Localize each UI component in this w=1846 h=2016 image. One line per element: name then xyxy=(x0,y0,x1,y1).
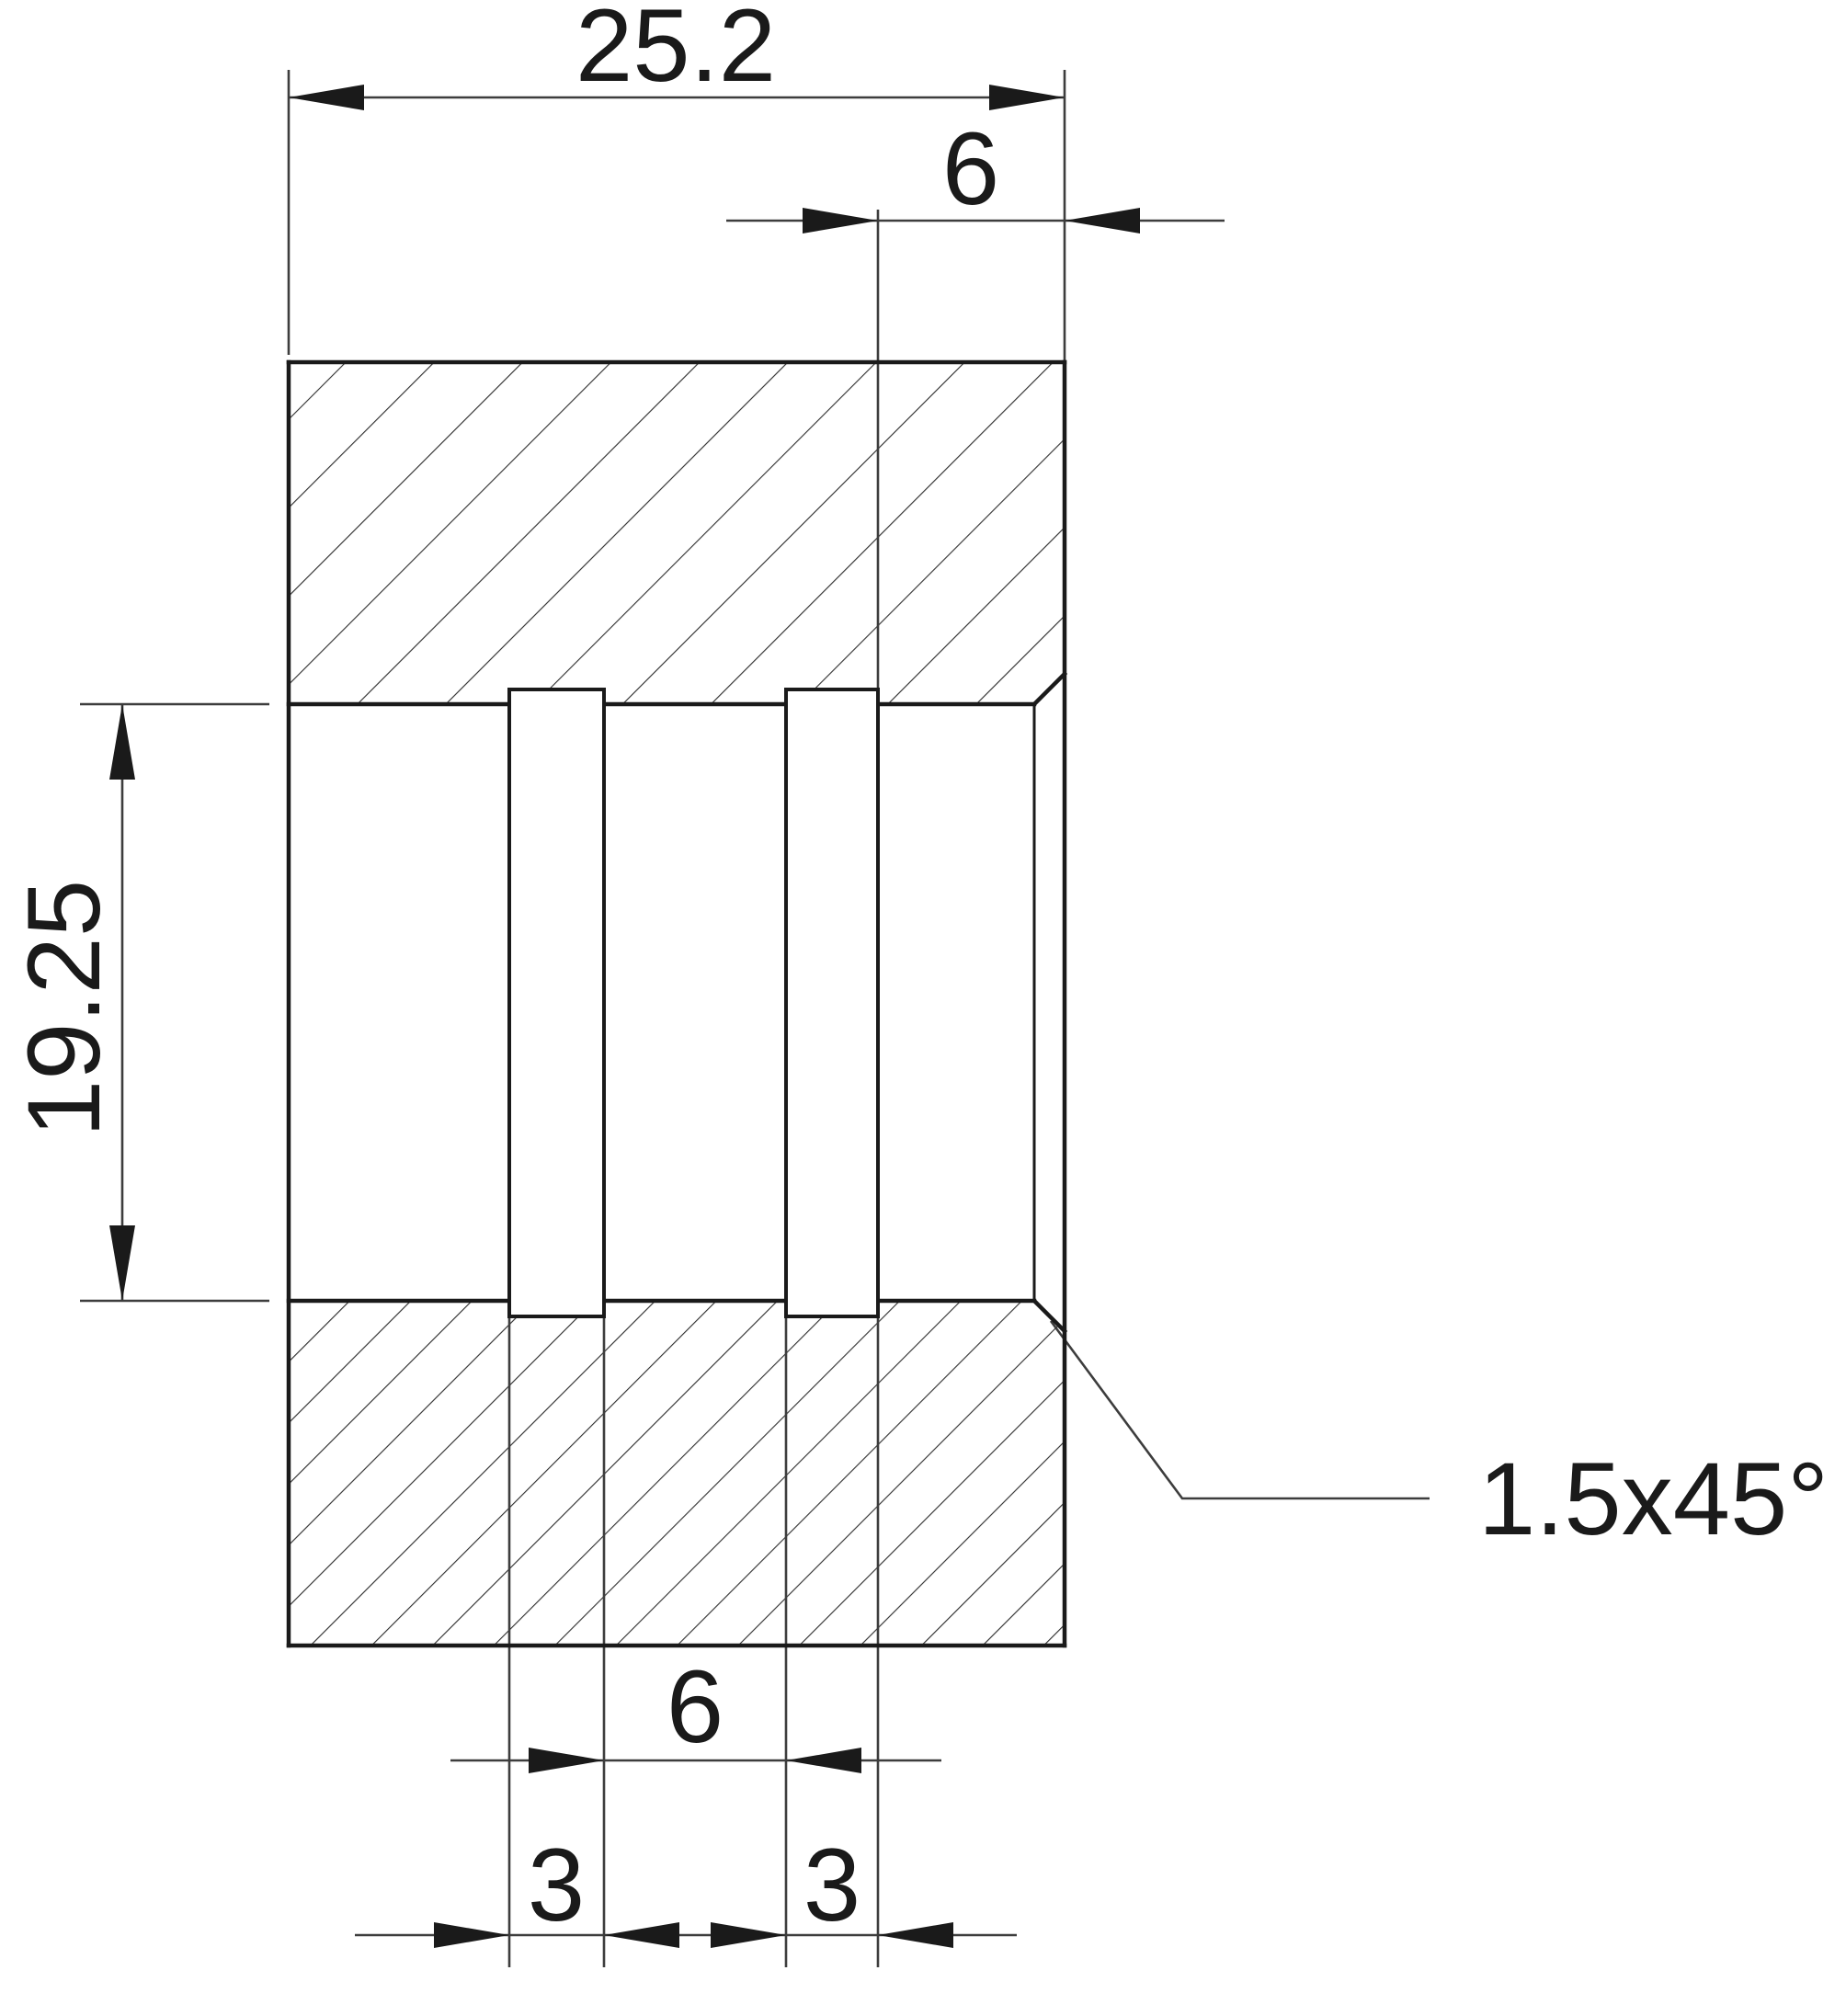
chamfer-note-label: 1.5x45° xyxy=(1478,1441,1829,1556)
technical-drawing: 25.2 6 19.25 6 3 3 1.5x45° xyxy=(0,0,1846,2016)
dim-groove1-width-label: 3 xyxy=(528,1828,585,1942)
dim-bore-height-label: 19.25 xyxy=(6,880,121,1137)
groove-2 xyxy=(786,689,878,1316)
dim-overall-width-label: 25.2 xyxy=(575,0,776,103)
bottom-wall-hatch xyxy=(289,1301,1065,1646)
dim-groove2-width-label: 3 xyxy=(803,1828,860,1942)
groove-1 xyxy=(509,689,604,1316)
drawing-background xyxy=(0,0,1846,2016)
top-wall-hatch xyxy=(289,362,1065,704)
dim-groove-gap-label: 6 xyxy=(667,1649,724,1764)
dim-right-offset-label: 6 xyxy=(942,111,999,226)
